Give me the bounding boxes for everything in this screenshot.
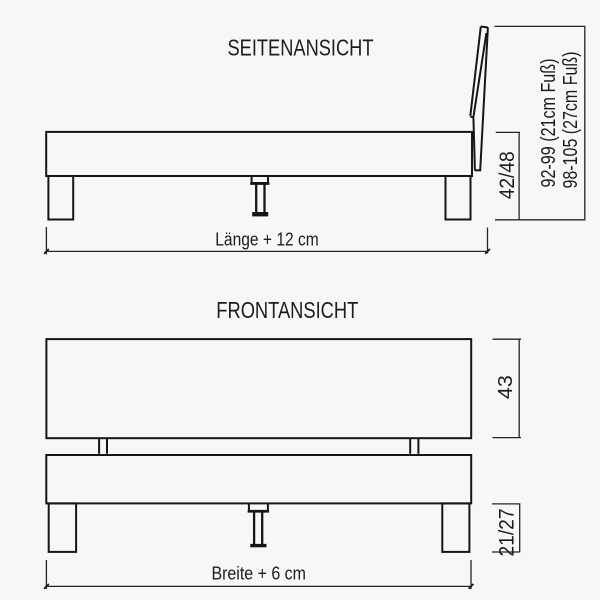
svg-text:SEITENANSICHT: SEITENANSICHT bbox=[228, 34, 374, 60]
svg-text:21/27: 21/27 bbox=[495, 509, 518, 557]
svg-text:FRONTANSICHT: FRONTANSICHT bbox=[216, 297, 358, 323]
svg-text:43: 43 bbox=[495, 375, 517, 399]
svg-text:Länge + 12 cm: Länge + 12 cm bbox=[215, 229, 319, 249]
svg-text:98-105 (27cm Fuß): 98-105 (27cm Fuß) bbox=[560, 52, 582, 189]
svg-text:92-99 (21cm Fuß): 92-99 (21cm Fuß) bbox=[538, 59, 560, 188]
svg-text:Breite + 6 cm: Breite + 6 cm bbox=[211, 563, 306, 583]
svg-text:42/48: 42/48 bbox=[496, 151, 519, 199]
